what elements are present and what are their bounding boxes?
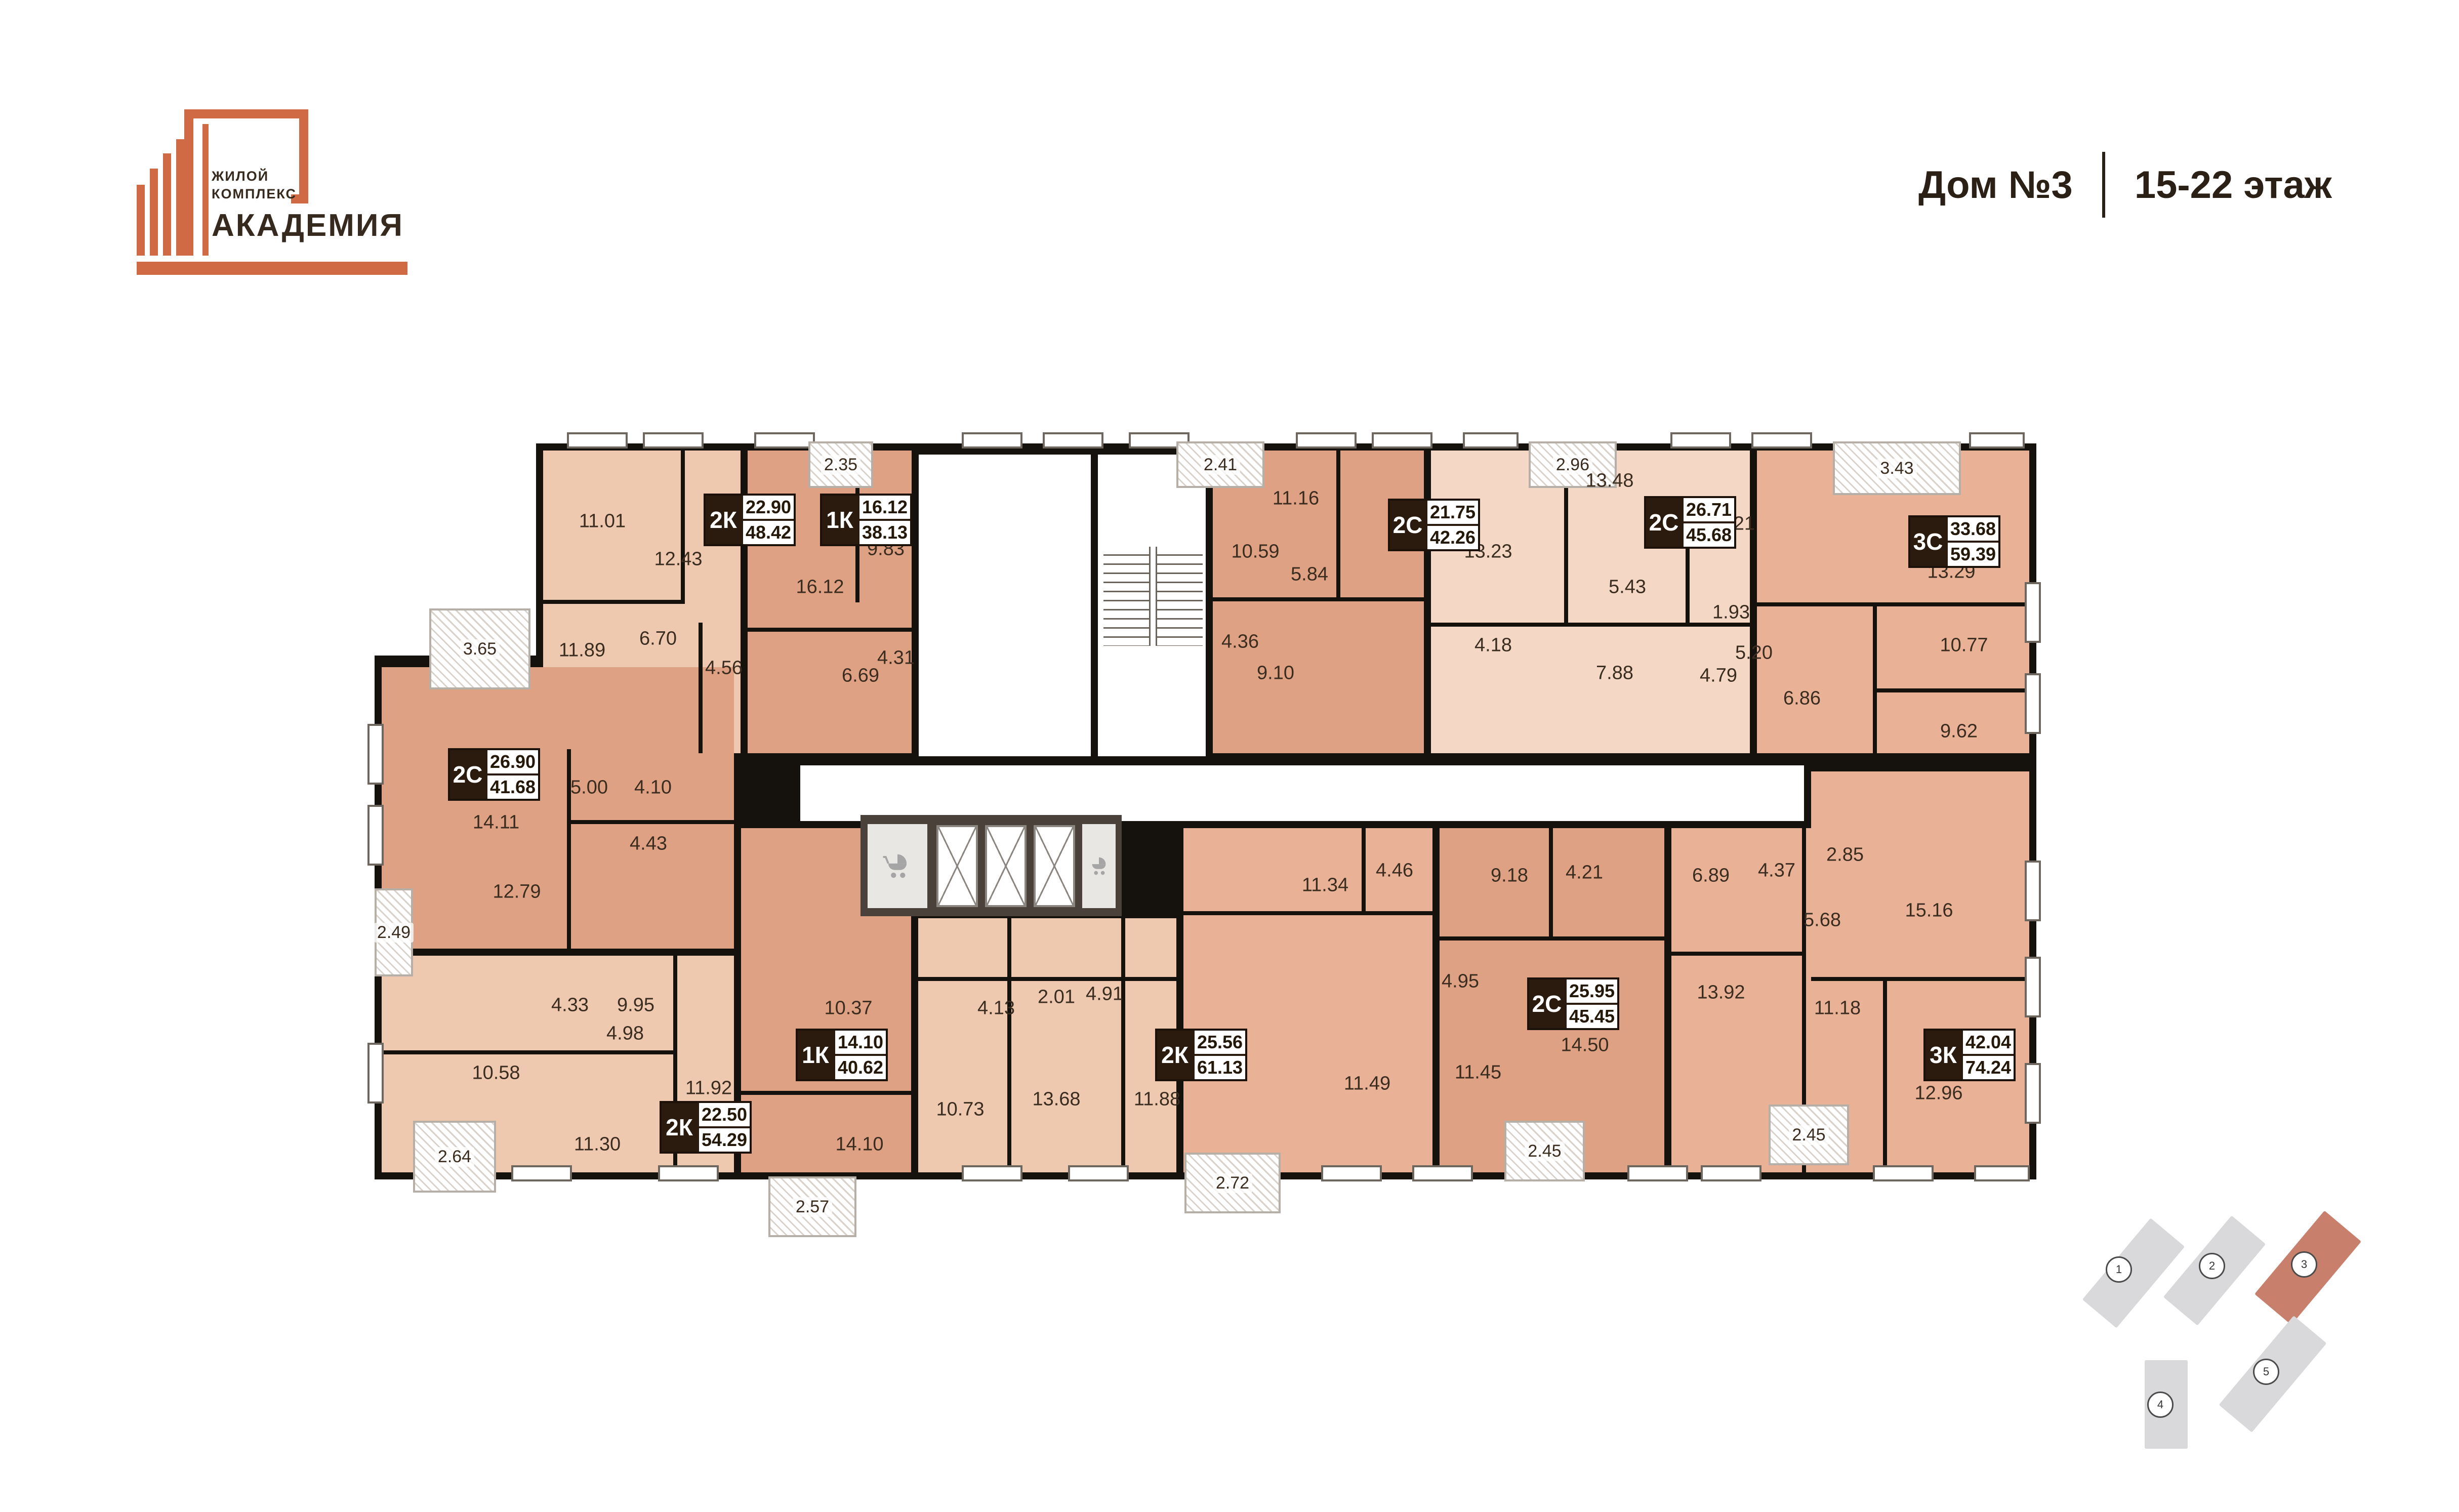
wall xyxy=(1811,977,2029,981)
room-area: 5.43 xyxy=(1609,577,1646,598)
apartment-panel xyxy=(1811,771,2029,828)
room-area: 4.33 xyxy=(551,995,589,1016)
room-area: 4.95 xyxy=(1442,971,1479,993)
wall xyxy=(1873,602,1877,753)
wall xyxy=(741,1091,911,1095)
stroller-room xyxy=(1082,824,1116,908)
apartment-total-area: 38.13 xyxy=(857,521,910,544)
stroller-icon xyxy=(882,850,913,882)
elevator-shaft xyxy=(936,825,978,907)
corridor xyxy=(800,765,1804,821)
wall xyxy=(543,600,685,604)
room-area: 4.98 xyxy=(606,1023,644,1045)
balcony-area: 3.65 xyxy=(460,639,500,659)
room-area: 5.00 xyxy=(570,777,608,799)
room-area: 10.58 xyxy=(472,1063,520,1084)
staircase xyxy=(1103,547,1203,646)
balcony: 2.41 xyxy=(1176,441,1264,488)
apartment-type: 2К xyxy=(706,496,741,544)
room-area: 14.10 xyxy=(835,1134,883,1156)
window xyxy=(2025,582,2041,643)
balcony-area: 2.64 xyxy=(435,1147,474,1167)
room-area: 4.18 xyxy=(1474,635,1512,657)
window xyxy=(1372,432,1432,448)
room-area: 13.92 xyxy=(1697,982,1745,1004)
minimap-label-5: 5 xyxy=(2253,1359,2279,1385)
balcony-area: 3.43 xyxy=(1877,459,1916,478)
apartment-living-area: 14.10 xyxy=(833,1031,886,1056)
room-area: 2.85 xyxy=(1826,844,1864,866)
floorplan-page: { "logo": {"line1": "ЖИЛОЙ", "line2": "К… xyxy=(0,0,2459,1512)
apartment-total-area: 40.62 xyxy=(833,1056,886,1079)
window xyxy=(567,432,628,448)
window xyxy=(643,432,704,448)
room-area: 4.10 xyxy=(634,777,672,799)
window xyxy=(754,432,815,448)
room-area: 5.84 xyxy=(1291,564,1328,586)
room-area: 5.68 xyxy=(1804,910,1841,931)
wall xyxy=(1121,918,1125,1172)
window xyxy=(1969,432,2025,448)
room-area: 4.21 xyxy=(1566,862,1603,884)
room-area: 12.96 xyxy=(1914,1083,1962,1105)
apartment-plaque[interactable]: 2С 25.9545.45 xyxy=(1527,977,1619,1030)
window xyxy=(962,1165,1022,1181)
apartment-plaque[interactable]: 1К 16.1238.13 xyxy=(820,494,912,546)
window xyxy=(2025,673,2041,734)
balcony: 2.45 xyxy=(1769,1105,1849,1165)
apartment-living-area: 42.04 xyxy=(1961,1031,2014,1056)
apartment-plaque[interactable]: 2К 22.9048.42 xyxy=(704,494,796,546)
apartment-total-area: 59.39 xyxy=(1946,543,1998,566)
wall xyxy=(1362,828,1366,911)
balcony: 2.72 xyxy=(1184,1153,1281,1213)
room-area: 4.56 xyxy=(705,658,743,679)
window xyxy=(367,724,384,785)
elevator-shaft xyxy=(1034,825,1075,907)
title-divider xyxy=(2102,152,2105,218)
room-area: 10.73 xyxy=(936,1099,984,1121)
apartment-plaque[interactable]: 2К 22.5054.29 xyxy=(660,1101,752,1154)
apartment-type: 2С xyxy=(1646,498,1682,547)
window xyxy=(2025,1063,2041,1124)
room-area: 4.36 xyxy=(1221,631,1259,653)
window xyxy=(1751,432,1812,448)
entry-lobby xyxy=(919,455,1091,756)
room-area: 9.10 xyxy=(1257,663,1294,684)
apartment-total-area: 41.68 xyxy=(485,775,538,799)
apartment-living-area: 26.90 xyxy=(485,750,538,775)
apartment-plaque[interactable]: 3К 42.0474.24 xyxy=(1923,1029,2016,1081)
wall xyxy=(1183,911,1432,915)
room-area: 4.46 xyxy=(1376,860,1413,882)
room-area: 11.16 xyxy=(1273,488,1319,510)
window xyxy=(1873,1165,1934,1181)
room-area: 14.11 xyxy=(473,812,519,834)
logo: ЖИЛОЙ КОМПЛЕКС АКАДЕМИЯ xyxy=(137,109,420,276)
apartment-plaque[interactable]: 2К 25.5661.13 xyxy=(1155,1029,1247,1081)
house-title: Дом №3 xyxy=(1918,163,2073,207)
apartment-type: 1К xyxy=(822,496,857,544)
stroller-icon xyxy=(1087,854,1111,878)
room-area: 15.16 xyxy=(1905,900,1953,922)
window xyxy=(962,432,1022,448)
minimap-label-3: 3 xyxy=(2291,1251,2317,1278)
room-area: 14.50 xyxy=(1561,1035,1609,1056)
room-area: 13.48 xyxy=(1585,470,1633,492)
apartment-type: 2К xyxy=(1157,1031,1193,1079)
apartment-living-area: 21.75 xyxy=(1425,501,1478,526)
apartment-total-area: 54.29 xyxy=(697,1128,750,1152)
balcony: 3.43 xyxy=(1833,441,1961,495)
room-area: 11.34 xyxy=(1302,875,1348,896)
window xyxy=(367,1043,384,1104)
apartment-plaque[interactable]: 2С 21.7542.26 xyxy=(1388,499,1480,551)
wall xyxy=(1873,688,2029,692)
window xyxy=(1412,1165,1473,1181)
logo-name: АКАДЕМИЯ xyxy=(212,210,404,241)
room-area: 4.91 xyxy=(1086,984,1123,1005)
room-area: 10.77 xyxy=(1940,635,1988,657)
apartment-plaque[interactable]: 1К 14.1040.62 xyxy=(796,1029,888,1081)
window xyxy=(658,1165,719,1181)
apartment-living-area: 33.68 xyxy=(1946,517,1998,543)
room-area: 11.89 xyxy=(559,640,605,662)
stroller-room xyxy=(868,824,927,908)
room-area: 10.59 xyxy=(1231,541,1279,563)
floors-title: 15-22 этаж xyxy=(2135,163,2332,207)
balcony: 2.35 xyxy=(808,441,873,488)
room-area: 1.93 xyxy=(1712,602,1750,624)
room-area: 9.95 xyxy=(617,995,654,1016)
wall xyxy=(1007,918,1011,1172)
balcony-area: 2.45 xyxy=(1789,1125,1828,1145)
balcony: 2.64 xyxy=(413,1121,496,1193)
minimap-label-1: 1 xyxy=(2106,1256,2132,1283)
room-area: 7.88 xyxy=(1596,663,1633,684)
window xyxy=(2025,957,2041,1017)
elevator-core xyxy=(860,815,1122,916)
room-area: 11.88 xyxy=(1134,1089,1180,1111)
apartment-type: 2С xyxy=(450,750,485,799)
wall xyxy=(1213,597,1424,601)
apartment-type: 1К xyxy=(798,1031,833,1079)
apartment-living-area: 22.50 xyxy=(697,1103,750,1128)
wall xyxy=(1440,936,1664,941)
room-area: 13.68 xyxy=(1032,1089,1080,1111)
apartment-living-area: 22.90 xyxy=(741,496,794,521)
apartment-living-area: 26.71 xyxy=(1682,498,1734,523)
wall xyxy=(681,451,685,602)
window xyxy=(1068,1165,1129,1181)
wall xyxy=(748,628,912,632)
window xyxy=(1627,1165,1688,1181)
wall xyxy=(1883,977,1887,1172)
room-area: 11.18 xyxy=(1814,998,1861,1019)
room-area: 4.31 xyxy=(877,647,915,669)
page-title: Дом №3 15-22 этаж xyxy=(1918,152,2332,218)
room-area: 11.01 xyxy=(579,511,626,533)
wall xyxy=(1336,451,1340,597)
apartment-panel xyxy=(918,918,1176,1172)
logo-line2: КОМПЛЕКС xyxy=(212,187,297,201)
balcony-area: 2.45 xyxy=(1525,1141,1564,1161)
room-area: 6.89 xyxy=(1692,865,1730,887)
apartment-type: 2С xyxy=(1390,501,1425,549)
minimap-label-2: 2 xyxy=(2199,1253,2225,1279)
wall xyxy=(567,820,734,824)
apartment-type: 2К xyxy=(662,1103,697,1152)
window xyxy=(1463,432,1519,448)
room-area: 16.12 xyxy=(796,577,844,598)
wall xyxy=(1757,602,2029,606)
room-area: 11.45 xyxy=(1455,1062,1501,1084)
room-area: 9.18 xyxy=(1491,865,1528,887)
room-area: 2.01 xyxy=(1038,987,1075,1008)
room-area: 5.20 xyxy=(1735,642,1773,664)
balcony: 2.49 xyxy=(375,888,413,976)
logo-line1: ЖИЛОЙ xyxy=(212,170,269,183)
apartment-total-area: 45.45 xyxy=(1565,1005,1617,1028)
window xyxy=(511,1165,572,1181)
apartment-living-area: 25.56 xyxy=(1193,1031,1245,1056)
balcony: 2.57 xyxy=(768,1176,856,1237)
balcony-area: 2.72 xyxy=(1213,1173,1252,1193)
window xyxy=(1974,1165,2030,1181)
balcony-area: 2.35 xyxy=(821,455,860,475)
apartment-plaque[interactable]: 2С 26.9041.68 xyxy=(448,748,540,801)
room-area: 4.79 xyxy=(1700,665,1737,687)
room-area: 12.79 xyxy=(493,881,541,903)
wall xyxy=(382,1050,673,1054)
wall xyxy=(699,623,703,753)
stair-stringer xyxy=(1149,547,1157,646)
room-area: 11.92 xyxy=(685,1078,732,1099)
minimap-building-1[interactable] xyxy=(2082,1218,2185,1328)
room-area: 6.86 xyxy=(1783,688,1821,710)
wall xyxy=(1671,952,1802,956)
window xyxy=(1321,1165,1382,1181)
room-area: 11.30 xyxy=(574,1134,621,1156)
apartment-type: 2С xyxy=(1529,979,1565,1028)
apartment-total-area: 42.26 xyxy=(1425,526,1478,549)
wall xyxy=(1549,828,1553,936)
window xyxy=(1296,432,1357,448)
room-area: 4.13 xyxy=(977,998,1015,1019)
balcony-area: 2.49 xyxy=(374,923,414,943)
balcony-area: 2.57 xyxy=(793,1197,832,1217)
apartment-type: 3С xyxy=(1910,517,1946,566)
window xyxy=(367,805,384,866)
room-area: 10.37 xyxy=(824,998,872,1019)
room-area: 4.43 xyxy=(630,833,667,855)
room-area: 12.43 xyxy=(654,549,702,570)
room-area: 9.62 xyxy=(1940,721,1978,743)
minimap-label-4: 4 xyxy=(2147,1392,2174,1418)
apartment-type: 3К xyxy=(1925,1031,1961,1079)
window xyxy=(1043,432,1103,448)
wall xyxy=(918,977,1176,981)
apartment-living-area: 25.95 xyxy=(1565,979,1617,1005)
balcony: 3.65 xyxy=(429,608,530,689)
window xyxy=(2025,861,2041,921)
room-area: 6.70 xyxy=(639,628,677,650)
apartment-panel xyxy=(382,667,734,949)
apartment-plaque[interactable]: 3С 33.6859.39 xyxy=(1908,515,2000,568)
wall xyxy=(1431,623,1750,627)
balcony: 2.45 xyxy=(1504,1121,1585,1181)
apartment-total-area: 74.24 xyxy=(1961,1056,2014,1079)
elevator-shaft xyxy=(985,825,1027,907)
room-area: 6.69 xyxy=(842,665,879,687)
window xyxy=(1701,1165,1761,1181)
apartment-total-area: 45.68 xyxy=(1682,523,1734,547)
room-area: 4.37 xyxy=(1758,860,1795,882)
apartment-plaque[interactable]: 2С 26.7145.68 xyxy=(1644,496,1736,549)
site-minimap: 1 2 3 4 5 xyxy=(2075,1210,2459,1483)
apartment-total-area: 48.42 xyxy=(741,521,794,544)
balcony-area: 2.41 xyxy=(1201,455,1240,475)
room-area: 11.49 xyxy=(1344,1073,1390,1095)
apartment-total-area: 61.13 xyxy=(1193,1056,1245,1079)
apartment-living-area: 16.12 xyxy=(857,496,910,521)
window xyxy=(1670,432,1731,448)
